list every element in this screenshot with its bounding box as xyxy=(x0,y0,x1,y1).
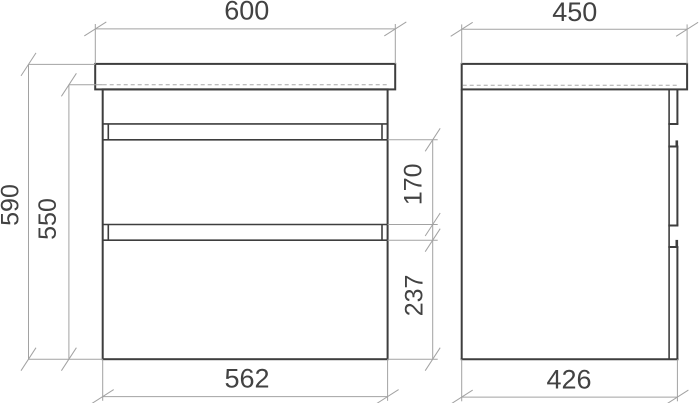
svg-text:562: 562 xyxy=(224,364,269,394)
svg-text:600: 600 xyxy=(224,0,269,26)
svg-text:237: 237 xyxy=(401,275,429,317)
svg-text:550: 550 xyxy=(34,198,62,240)
svg-text:426: 426 xyxy=(546,365,591,395)
svg-text:170: 170 xyxy=(400,163,428,205)
svg-text:590: 590 xyxy=(0,184,25,226)
svg-text:450: 450 xyxy=(552,0,597,27)
